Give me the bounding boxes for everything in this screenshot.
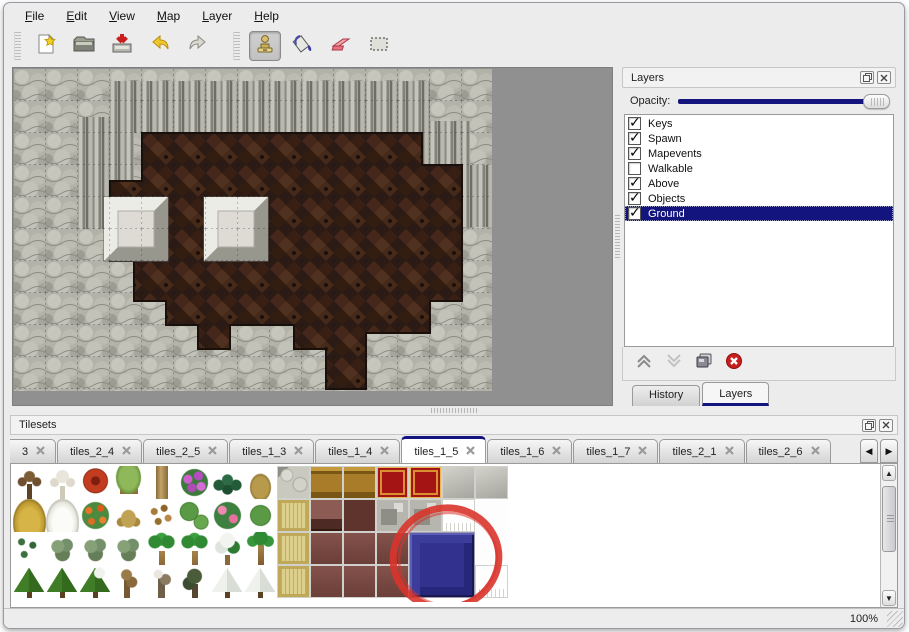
tile-conifer[interactable] bbox=[46, 565, 79, 598]
layer-visibility-checkbox[interactable] bbox=[628, 207, 641, 220]
menu-map[interactable]: Map bbox=[148, 7, 189, 25]
layer-actions bbox=[622, 347, 896, 381]
tileset-tab-tiles_1_7[interactable]: tiles_1_7 bbox=[573, 439, 658, 463]
zoom-level: 100% bbox=[850, 613, 878, 625]
tileset-view[interactable]: ▲ ▼ bbox=[10, 463, 898, 608]
tab-label: tiles_1_6 bbox=[500, 446, 544, 458]
tile-dryplant[interactable] bbox=[244, 466, 277, 499]
horizontal-splitter[interactable] bbox=[4, 406, 904, 415]
layer-row-keys[interactable]: Keys bbox=[625, 116, 893, 131]
opacity-slider[interactable] bbox=[678, 93, 890, 109]
close-tab-icon[interactable] bbox=[122, 446, 131, 458]
tile-drytuft[interactable] bbox=[112, 499, 145, 532]
tile-tancarpet[interactable] bbox=[277, 565, 310, 598]
tilesets-panel: Tilesets 3tiles_2_4tiles_2_5tiles_1_3til… bbox=[10, 415, 898, 608]
layer-label: Above bbox=[648, 178, 679, 190]
menu-help[interactable]: Help bbox=[245, 7, 288, 25]
undo-icon bbox=[147, 32, 173, 61]
tile-blue2x2[interactable] bbox=[409, 532, 475, 598]
close-tab-icon[interactable] bbox=[811, 446, 820, 458]
tile-gnarledtree[interactable] bbox=[145, 565, 178, 598]
close-tab-icon[interactable] bbox=[638, 446, 647, 458]
layer-row-objects[interactable]: Objects bbox=[625, 191, 893, 206]
opacity-slider-track[interactable] bbox=[678, 99, 888, 104]
undo-tool-button[interactable] bbox=[144, 31, 176, 61]
scroll-down-icon[interactable]: ▼ bbox=[882, 590, 896, 606]
tile-leaves[interactable] bbox=[145, 499, 178, 532]
tile-maroonsm[interactable] bbox=[310, 499, 343, 532]
tile-metal[interactable] bbox=[376, 499, 409, 532]
menu-view[interactable]: View bbox=[100, 7, 144, 25]
tab-label: tiles_2_1 bbox=[672, 446, 716, 458]
eraser-icon bbox=[328, 32, 354, 61]
tile-redcarpet[interactable] bbox=[376, 466, 409, 499]
fill-bucket-icon bbox=[290, 32, 316, 61]
layer-label: Keys bbox=[648, 118, 672, 130]
menu-edit[interactable]: Edit bbox=[57, 7, 96, 25]
opacity-label: Opacity: bbox=[630, 95, 670, 107]
tile-maroon[interactable] bbox=[376, 565, 409, 598]
stamp-tool-button[interactable] bbox=[249, 31, 281, 61]
tile-palm[interactable] bbox=[145, 532, 178, 565]
tile-grid bbox=[13, 466, 508, 598]
main-area: Layers Opacity: KeysSpawnMapeventsWalkab… bbox=[4, 65, 904, 406]
menu-bar: FileEditViewMapLayerHelp bbox=[4, 3, 904, 27]
tab-label: tiles_1_7 bbox=[586, 446, 630, 458]
status-bar: 100% bbox=[4, 608, 904, 628]
layer-label: Spawn bbox=[648, 133, 682, 145]
vertical-splitter[interactable] bbox=[613, 67, 622, 406]
tile-bush[interactable] bbox=[46, 532, 79, 565]
tileset-tab-tiles_1_5[interactable]: tiles_1_5 bbox=[401, 436, 486, 463]
layer-row-spawn[interactable]: Spawn bbox=[625, 131, 893, 146]
tile-redbloom[interactable] bbox=[79, 466, 112, 499]
resize-grip[interactable] bbox=[887, 611, 903, 627]
tileset-tab-tiles_1_3[interactable]: tiles_1_3 bbox=[229, 439, 314, 463]
layers-list: KeysSpawnMapeventsWalkableAboveObjectsGr… bbox=[624, 114, 894, 347]
layer-row-mapevents[interactable]: Mapevents bbox=[625, 146, 893, 161]
tab-label: tiles_2_5 bbox=[156, 446, 200, 458]
tileset-tab-tiles_2_4[interactable]: tiles_2_4 bbox=[57, 439, 142, 463]
tile-fern[interactable] bbox=[211, 466, 244, 499]
app-window: FileEditViewMapLayerHelp bbox=[3, 2, 905, 629]
tilesets-panel-title: Tilesets bbox=[19, 419, 859, 431]
close-tab-icon[interactable] bbox=[36, 446, 45, 458]
tile-stonecobble[interactable] bbox=[277, 466, 310, 499]
tile-whitefringe[interactable] bbox=[442, 499, 475, 532]
tile-haypile[interactable] bbox=[13, 499, 46, 532]
opacity-row: Opacity: bbox=[622, 88, 896, 112]
tab-scroll-buttons: ◀ ▶ bbox=[860, 439, 898, 463]
tile-redcarpet[interactable] bbox=[409, 466, 442, 499]
tile-maroondk[interactable] bbox=[343, 499, 376, 532]
fill-tool-button[interactable] bbox=[287, 31, 319, 61]
tile-conifersnow[interactable] bbox=[79, 565, 112, 598]
tileset-tab-3[interactable]: 3 bbox=[10, 439, 56, 463]
tileset-tabs: 3tiles_2_4tiles_2_5tiles_1_3tiles_1_4til… bbox=[10, 435, 898, 463]
tile-orangeflowers[interactable] bbox=[79, 499, 112, 532]
menu-file[interactable]: File bbox=[16, 7, 53, 25]
delete-layer-icon[interactable] bbox=[725, 352, 743, 375]
tile-snowtree[interactable] bbox=[211, 532, 244, 565]
tile-maroon[interactable] bbox=[376, 532, 409, 565]
open-tool-button[interactable] bbox=[68, 31, 100, 61]
float-panel-icon[interactable] bbox=[862, 419, 876, 432]
scroll-up-icon[interactable]: ▲ bbox=[882, 465, 896, 481]
close-tab-icon[interactable] bbox=[294, 446, 303, 458]
tile-grid-overlay bbox=[14, 69, 492, 391]
tile-pinkflowers[interactable] bbox=[211, 499, 244, 532]
toolbar-group-file bbox=[27, 31, 217, 61]
menu-layer[interactable]: Layer bbox=[193, 7, 241, 25]
close-panel-icon[interactable] bbox=[877, 71, 891, 84]
duplicate-layer-icon[interactable] bbox=[695, 352, 713, 375]
tileset-scrollbar[interactable]: ▲ ▼ bbox=[880, 464, 897, 607]
float-panel-icon[interactable] bbox=[860, 71, 874, 84]
tileset-tab-tiles_1_6[interactable]: tiles_1_6 bbox=[487, 439, 572, 463]
layers-panel-title: Layers bbox=[631, 72, 857, 84]
move-layer-up-icon[interactable] bbox=[635, 352, 653, 375]
dock-tabs: HistoryLayers bbox=[622, 381, 896, 406]
tab-label: tiles_1_4 bbox=[328, 446, 372, 458]
tile-palm[interactable] bbox=[178, 532, 211, 565]
tile-metal[interactable] bbox=[409, 499, 442, 532]
tile-twistedtree[interactable] bbox=[112, 565, 145, 598]
map-canvas[interactable] bbox=[14, 69, 492, 391]
tile-graytile[interactable] bbox=[442, 466, 475, 499]
tile-tancarpet[interactable] bbox=[277, 532, 310, 565]
tile-maroon[interactable] bbox=[343, 532, 376, 565]
save-tool-button[interactable] bbox=[106, 31, 138, 61]
eraser-tool-button[interactable] bbox=[325, 31, 357, 61]
tile-stump[interactable] bbox=[112, 466, 145, 499]
tileset-tab-tiles_2_1[interactable]: tiles_2_1 bbox=[659, 439, 744, 463]
tileset-tab-tiles_1_4[interactable]: tiles_1_4 bbox=[315, 439, 400, 463]
layer-row-walkable[interactable]: Walkable bbox=[625, 161, 893, 176]
layer-row-above[interactable]: Above bbox=[625, 176, 893, 191]
tab-label: 3 bbox=[22, 446, 28, 458]
redo-icon bbox=[185, 32, 211, 61]
tile-maroon[interactable] bbox=[343, 565, 376, 598]
toolbar bbox=[4, 27, 904, 65]
dock-tab-history[interactable]: History bbox=[632, 385, 700, 406]
new-tool-button[interactable] bbox=[30, 31, 62, 61]
close-tab-icon[interactable] bbox=[725, 446, 734, 458]
tab-label: tiles_1_3 bbox=[242, 446, 286, 458]
tab-label: tiles_1_5 bbox=[414, 446, 458, 458]
open-folder-icon bbox=[71, 32, 97, 61]
tile-snowconifer[interactable] bbox=[211, 565, 244, 598]
layer-label: Objects bbox=[648, 193, 685, 205]
layer-visibility-checkbox[interactable] bbox=[628, 147, 641, 160]
close-tab-icon[interactable] bbox=[552, 446, 561, 458]
tile-woodtop[interactable] bbox=[343, 466, 376, 499]
tile-maroon[interactable] bbox=[310, 532, 343, 565]
close-tab-icon[interactable] bbox=[466, 446, 475, 458]
tilesets-panel-header: Tilesets bbox=[10, 415, 898, 435]
layers-panel-header: Layers bbox=[622, 67, 896, 88]
tile-darktree[interactable] bbox=[178, 565, 211, 598]
tile-bush[interactable] bbox=[112, 532, 145, 565]
tile-tancarpet[interactable] bbox=[277, 499, 310, 532]
tile-white[interactable] bbox=[475, 499, 508, 532]
close-tab-icon[interactable] bbox=[380, 446, 389, 458]
select-tool-button[interactable] bbox=[363, 31, 395, 61]
tab-label: tiles_2_6 bbox=[759, 446, 803, 458]
tile-palmtall[interactable] bbox=[244, 532, 277, 565]
layers-panel: Layers Opacity: KeysSpawnMapeventsWalkab… bbox=[622, 67, 896, 406]
scroll-tabs-right-icon[interactable]: ▶ bbox=[880, 439, 898, 463]
toolbar-grip[interactable] bbox=[14, 32, 21, 60]
tile-deadtree[interactable] bbox=[13, 466, 46, 499]
tile-snowpile[interactable] bbox=[46, 499, 79, 532]
tileset-tab-tiles_2_5[interactable]: tiles_2_5 bbox=[143, 439, 228, 463]
redo-tool-button[interactable] bbox=[182, 31, 214, 61]
layer-label: Walkable bbox=[648, 163, 693, 175]
opacity-slider-handle[interactable] bbox=[863, 94, 890, 109]
tile-purpleflowers[interactable] bbox=[178, 466, 211, 499]
stamp-tool-icon bbox=[253, 32, 277, 61]
scroll-tabs-left-icon[interactable]: ◀ bbox=[860, 439, 878, 463]
scrollbar-thumb[interactable] bbox=[882, 486, 896, 552]
layer-row-ground[interactable]: Ground bbox=[625, 206, 893, 221]
tile-lilypads[interactable] bbox=[178, 499, 211, 532]
save-icon bbox=[109, 32, 135, 61]
close-tab-icon[interactable] bbox=[208, 446, 217, 458]
map-viewport[interactable] bbox=[12, 67, 613, 406]
layer-label: Mapevents bbox=[648, 148, 702, 160]
tile-snowconifer[interactable] bbox=[244, 565, 277, 598]
tab-label: tiles_2_4 bbox=[70, 446, 114, 458]
tile-woodtop[interactable] bbox=[310, 466, 343, 499]
tile-graytile[interactable] bbox=[475, 466, 508, 499]
tile-white[interactable] bbox=[475, 532, 508, 565]
tileset-tab-tiles_2_6[interactable]: tiles_2_6 bbox=[746, 439, 831, 463]
toolbar-grip[interactable] bbox=[233, 32, 240, 60]
tile-trunk[interactable] bbox=[145, 466, 178, 499]
move-layer-down-icon[interactable] bbox=[665, 352, 683, 375]
layer-label: Ground bbox=[648, 208, 685, 220]
select-rect-icon bbox=[366, 32, 392, 61]
tile-sprouts[interactable] bbox=[13, 532, 46, 565]
scrollbar-track[interactable] bbox=[882, 482, 896, 589]
tile-whitetree[interactable] bbox=[46, 466, 79, 499]
tile-conifer[interactable] bbox=[13, 565, 46, 598]
toolbar-group-tools bbox=[246, 31, 398, 61]
tile-bush[interactable] bbox=[79, 532, 112, 565]
tile-whitefringe[interactable] bbox=[475, 565, 508, 598]
dock-tab-layers[interactable]: Layers bbox=[702, 382, 769, 406]
tile-lilypad[interactable] bbox=[244, 499, 277, 532]
new-file-icon bbox=[34, 32, 58, 61]
close-panel-icon[interactable] bbox=[879, 419, 893, 432]
tile-maroon[interactable] bbox=[310, 565, 343, 598]
